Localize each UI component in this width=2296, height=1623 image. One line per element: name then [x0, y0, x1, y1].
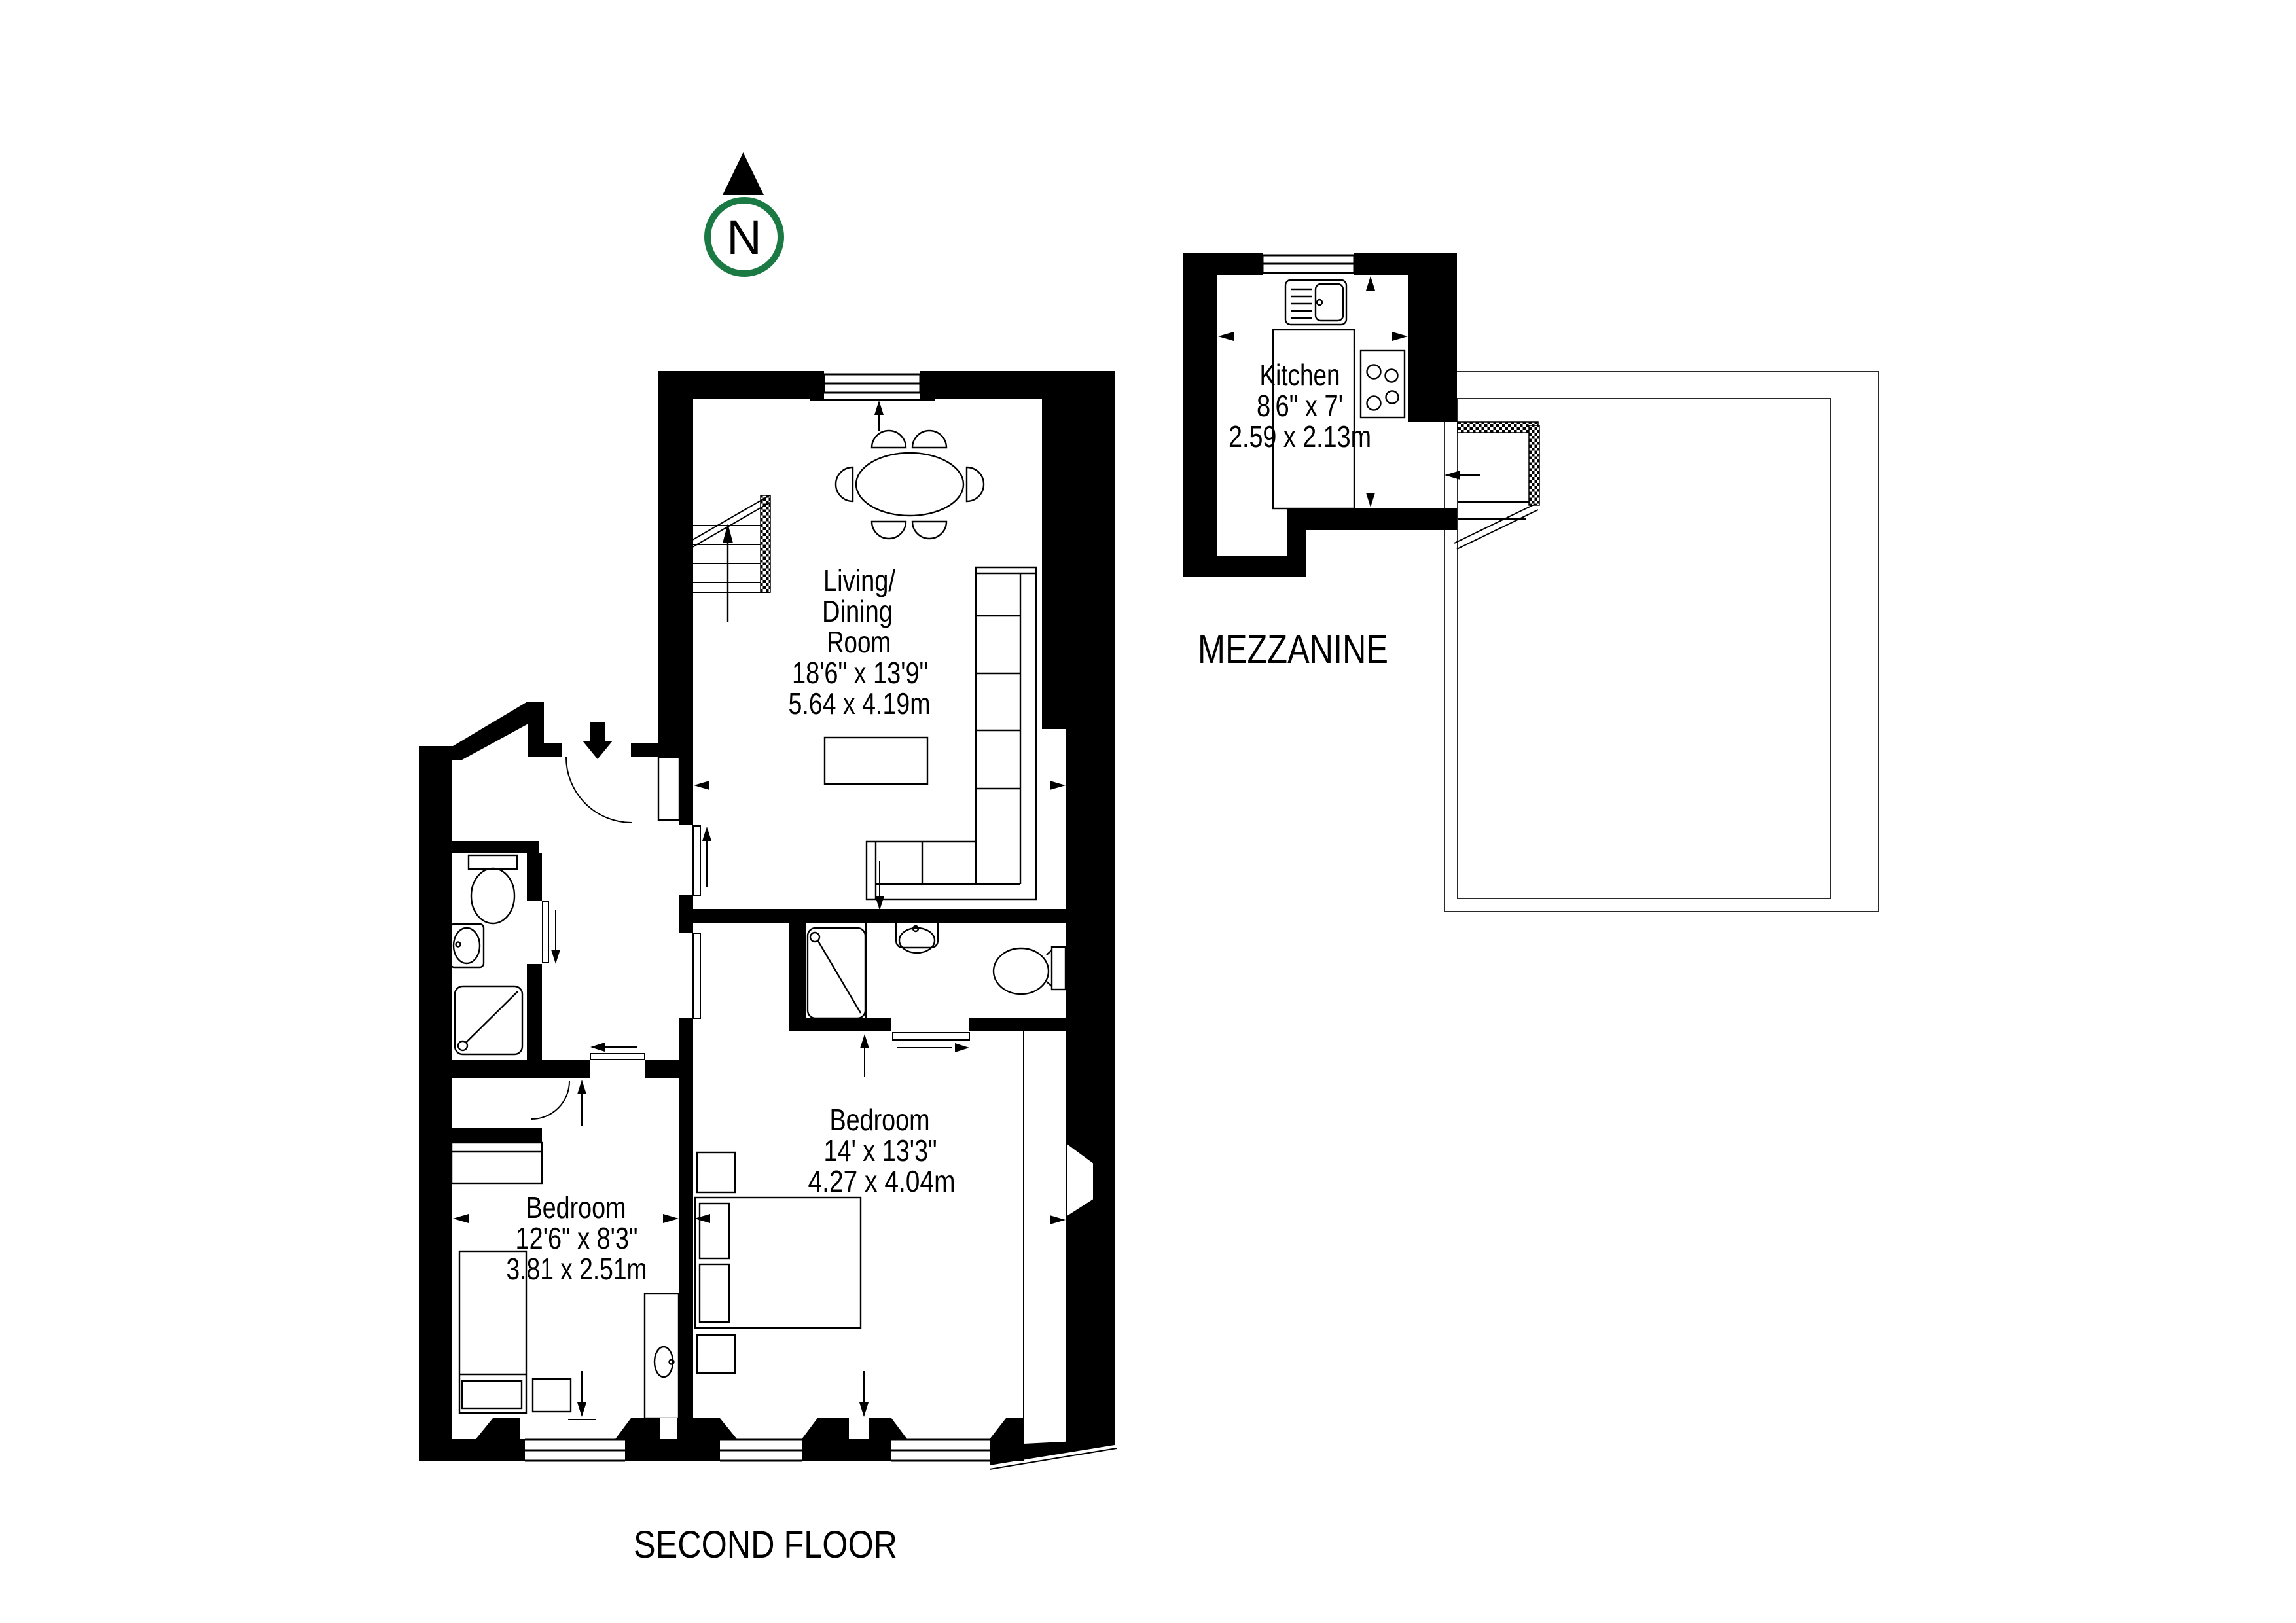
svg-text:2.59 x 2.13m: 2.59 x 2.13m — [1229, 419, 1371, 454]
svg-text:14' x 13'3": 14' x 13'3" — [824, 1133, 937, 1168]
svg-text:5.64 x 4.19m: 5.64 x 4.19m — [789, 687, 931, 721]
svg-text:Bedroom: Bedroom — [526, 1190, 626, 1224]
svg-text:Dining: Dining — [822, 594, 893, 628]
svg-text:N: N — [726, 210, 761, 264]
svg-text:MEZZANINE: MEZZANINE — [1198, 627, 1388, 672]
svg-text:SECOND FLOOR: SECOND FLOOR — [634, 1524, 897, 1566]
svg-text:8'6" x 7': 8'6" x 7' — [1257, 389, 1343, 423]
svg-text:3.81 x 2.51m: 3.81 x 2.51m — [507, 1252, 647, 1286]
svg-text:Kitchen: Kitchen — [1260, 358, 1340, 392]
svg-text:Living/: Living/ — [823, 563, 895, 597]
svg-text:4.27 x 4.04m: 4.27 x 4.04m — [808, 1164, 956, 1198]
svg-text:12'6" x 8'3": 12'6" x 8'3" — [516, 1221, 638, 1255]
svg-text:Bedroom: Bedroom — [830, 1103, 930, 1137]
svg-text:18'6" x 13'9": 18'6" x 13'9" — [792, 656, 928, 690]
svg-text:Room: Room — [827, 625, 891, 659]
